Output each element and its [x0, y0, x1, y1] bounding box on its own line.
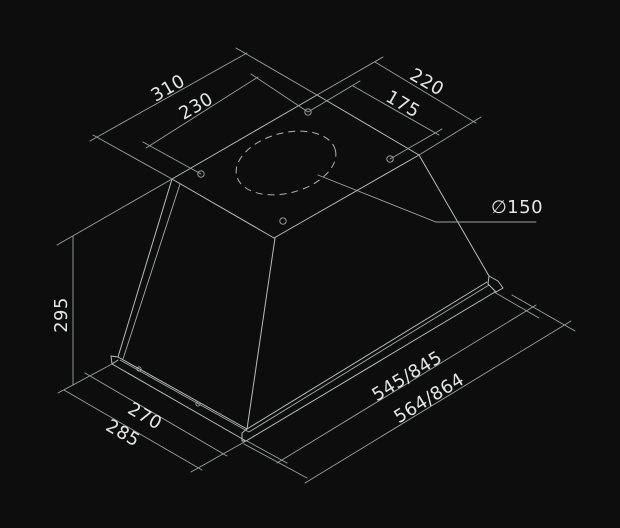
body-edge-left-seam: [123, 184, 180, 359]
dim-270-285-extension-line: [191, 441, 246, 472]
dim-295-label: 295: [51, 297, 72, 333]
dim-150-label: ∅150: [491, 197, 543, 218]
top-plate-outline: [172, 95, 419, 238]
rim-right-top-edge: [247, 282, 487, 429]
top-plate-mount-holes: [198, 109, 393, 224]
hood-dimension-drawing: 310 230 220 175 ∅: [0, 0, 620, 528]
mount-hole: [280, 218, 286, 224]
dim-175-label: 175: [382, 86, 424, 122]
dim-175: 175: [308, 81, 442, 159]
body-edge-front: [247, 238, 275, 429]
dim-270-285: 270 285: [64, 373, 246, 472]
rim-east-cap: [488, 276, 503, 292]
exhaust-outlet-dashed-circle: [229, 121, 343, 205]
dimensions: 310 230 220 175 ∅: [51, 48, 575, 483]
dim-230-label: 230: [175, 88, 217, 124]
rim-right-bottom-edge: [246, 292, 495, 441]
rim-right-inner-edge: [249, 285, 489, 432]
dim-545-564: 545/845 564/864: [244, 292, 575, 483]
dim-220-label: 220: [406, 64, 448, 100]
bottom-rim: [111, 276, 503, 441]
body-edge-right: [419, 155, 489, 276]
rim-west-cap: [111, 356, 118, 364]
dim-295-extension-lines: [57, 179, 172, 393]
dim-175-extension-lines: [308, 81, 442, 159]
drawing-canvas: 310 230 220 175 ∅: [0, 0, 620, 528]
dim-diameter-150: ∅150: [318, 175, 543, 222]
